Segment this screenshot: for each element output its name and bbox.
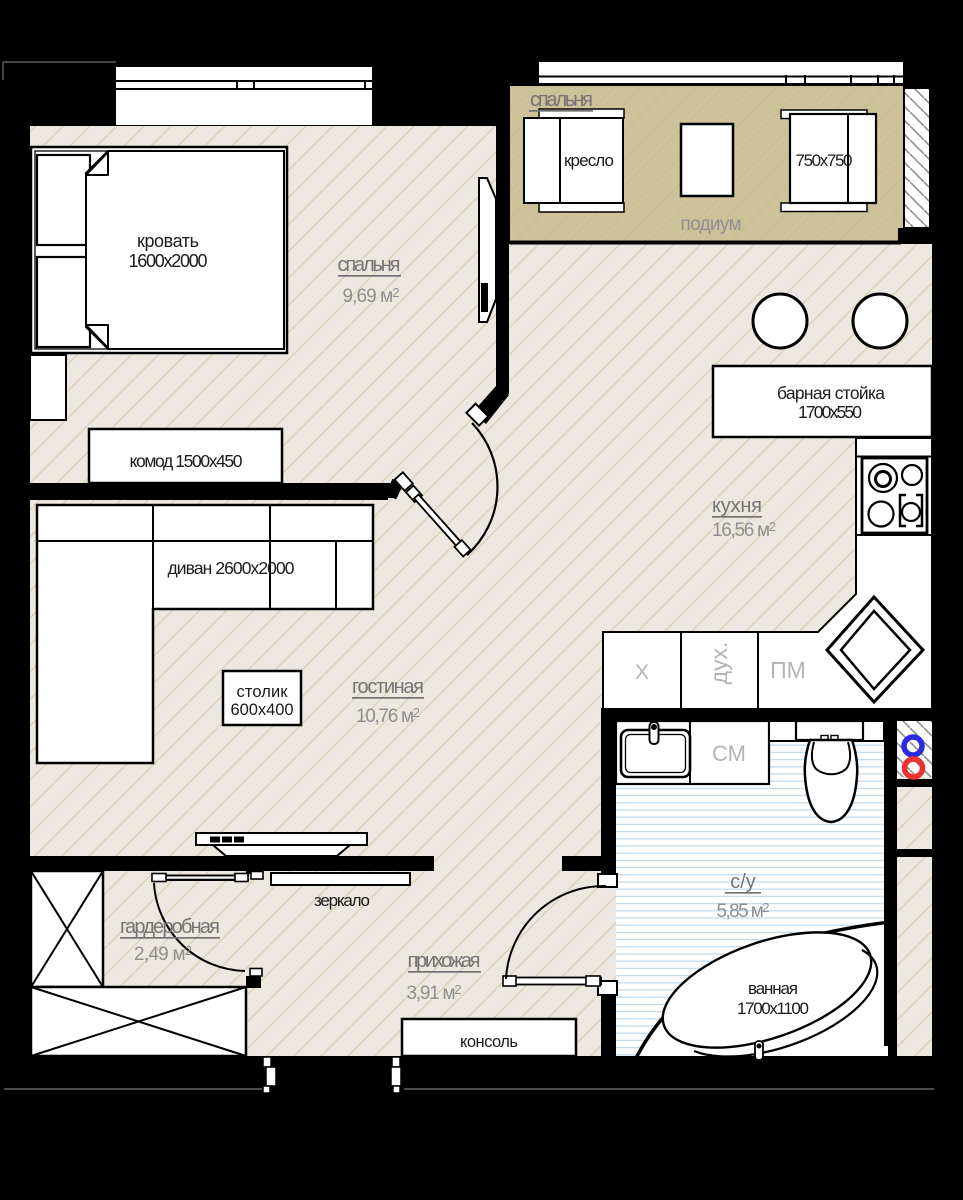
svg-text:750х750: 750х750 (796, 151, 853, 170)
svg-text:ванная: ванная (748, 979, 798, 998)
svg-text:кресло: кресло (564, 151, 614, 170)
svg-text:СМ: СМ (712, 741, 746, 766)
svg-text:1600х2000: 1600х2000 (129, 251, 208, 271)
svg-text:3,91 м2: 3,91 м2 (407, 982, 462, 1004)
svg-text:кухня: кухня (712, 495, 762, 517)
svg-text:Х: Х (635, 661, 649, 684)
svg-text:столик: столик (237, 683, 289, 701)
svg-text:ПМ: ПМ (770, 657, 806, 683)
svg-text:комод 1500х450: комод 1500х450 (130, 451, 243, 471)
svg-text:1700х550: 1700х550 (798, 402, 862, 422)
svg-text:барная стойка: барная стойка (777, 383, 885, 403)
svg-text:10,76 м2: 10,76 м2 (356, 705, 420, 727)
svg-text:600х400: 600х400 (231, 701, 294, 719)
svg-text:5,85 м2: 5,85 м2 (717, 900, 770, 922)
svg-text:16,56 м2: 16,56 м2 (712, 519, 776, 541)
svg-text:1700х1100: 1700х1100 (737, 999, 809, 1018)
svg-text:консоль: консоль (460, 1033, 518, 1051)
svg-text:диван 2600х2000: диван 2600х2000 (168, 558, 295, 578)
svg-text:кровать: кровать (137, 231, 199, 251)
svg-text:подиум: подиум (681, 214, 742, 235)
svg-text:прихожая: прихожая (408, 950, 481, 972)
svg-text:9,69 м2: 9,69 м2 (343, 285, 400, 307)
svg-text:спальня: спальня (338, 254, 401, 276)
svg-text:2,49 м2: 2,49 м2 (134, 943, 192, 965)
svg-text:гардеробная: гардеробная (120, 916, 220, 938)
svg-text:с/у: с/у (730, 871, 756, 893)
svg-text:гостиная: гостиная (352, 676, 424, 698)
svg-text:зеркало: зеркало (314, 891, 370, 910)
svg-text:спальня: спальня (530, 89, 593, 111)
svg-text:дух.: дух. (706, 642, 732, 685)
